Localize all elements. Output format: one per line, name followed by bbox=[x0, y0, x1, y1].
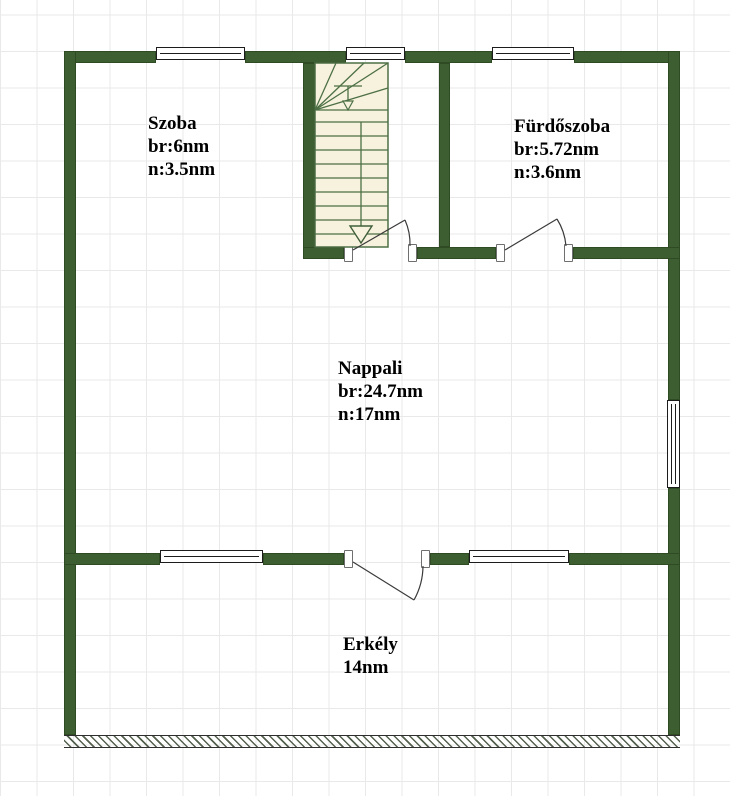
floor-plan: Szoba br:6nm n:3.5nm Fürdőszoba br:5.72n… bbox=[0, 0, 730, 796]
room-label-erkely: Erkély 14nm bbox=[343, 633, 398, 679]
room-name: Nappali bbox=[338, 357, 423, 380]
room-label-furdoszoba: Fürdőszoba br:5.72nm n:3.6nm bbox=[514, 115, 610, 184]
door-bathroom bbox=[505, 219, 566, 250]
floor-plan-page: { "title": "Emeleti alaprajz", "colors":… bbox=[0, 0, 730, 796]
room-name: Erkély bbox=[343, 633, 398, 656]
staircase bbox=[315, 63, 388, 247]
room-name: Szoba bbox=[148, 112, 215, 135]
room-net-area: n:3.5nm bbox=[148, 158, 215, 181]
room-label-nappali: Nappali br:24.7nm n:17nm bbox=[338, 357, 423, 426]
door-balcony bbox=[353, 562, 423, 600]
room-gross-area: 14nm bbox=[343, 656, 398, 679]
room-gross-area: br:24.7nm bbox=[338, 380, 423, 403]
room-label-szoba: Szoba br:6nm n:3.5nm bbox=[148, 112, 215, 181]
balcony-edge-hatch bbox=[64, 735, 680, 748]
room-net-area: n:17nm bbox=[338, 403, 423, 426]
room-gross-area: br:6nm bbox=[148, 135, 215, 158]
room-net-area: n:3.6nm bbox=[514, 161, 610, 184]
room-name: Fürdőszoba bbox=[514, 115, 610, 138]
room-gross-area: br:5.72nm bbox=[514, 138, 610, 161]
